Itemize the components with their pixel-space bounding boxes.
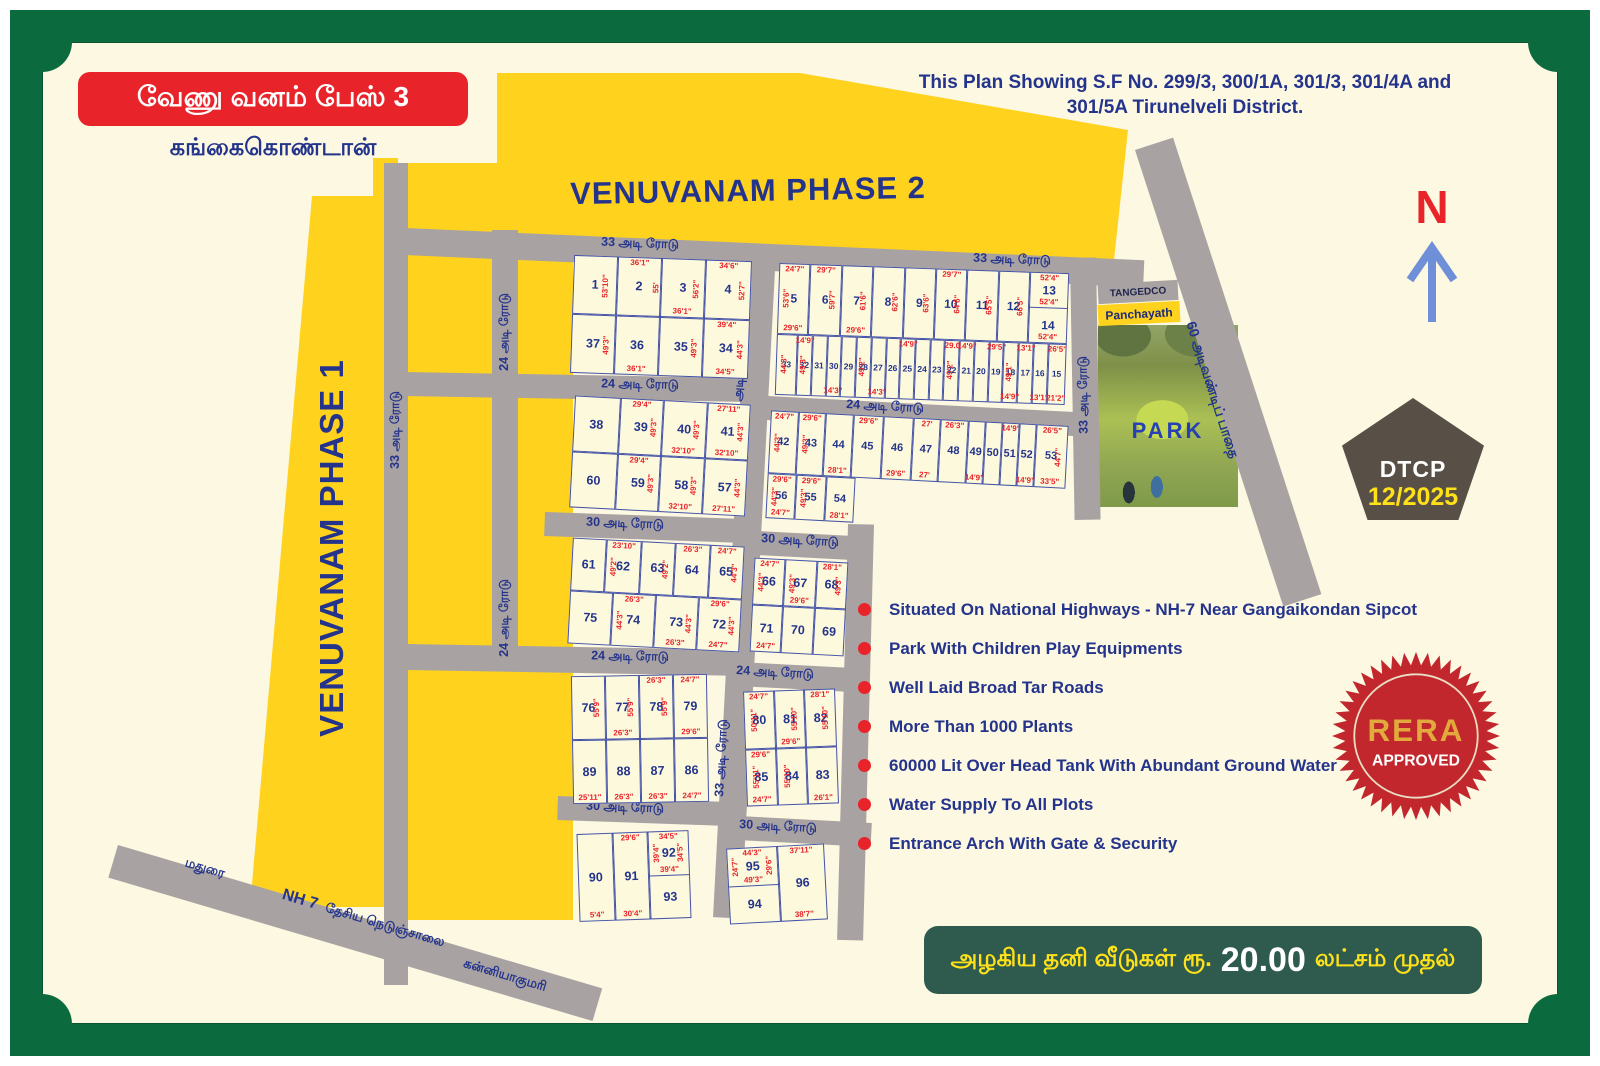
plot-dimension: 44'3" [771, 486, 780, 505]
plot-dimension: 39'4" [717, 321, 736, 330]
plot-dimension: 29'6" [621, 834, 640, 843]
plot-number: 16 [1035, 369, 1045, 378]
plot-83: 8326'1" [806, 746, 839, 805]
plot-dimension: 49'2" [662, 559, 671, 578]
survey-note: This Plan Showing S.F No. 299/3, 300/1A,… [900, 70, 1470, 120]
plot-dimension: 26'5" [1048, 345, 1067, 354]
plot-dimension: 24'7" [756, 642, 775, 651]
plot-14: 1452'4" [1029, 307, 1067, 343]
plot-dimension: 28'1" [829, 511, 848, 520]
plot-number: 94 [747, 897, 762, 910]
plot-dimension: 26'3" [665, 639, 684, 648]
plot-dimension: 14'3" [867, 388, 886, 397]
plot-62: 6223'10"49'2" [604, 539, 641, 594]
plot-dimension: 29'7" [942, 271, 961, 280]
plot-dimension: 24'7" [752, 796, 771, 805]
plot-dimension: 26'3" [683, 545, 702, 554]
plot-number: 13 [1042, 284, 1056, 296]
plot-dimension: 55'9" [627, 698, 635, 717]
plot-74: 7426'3"44'3" [610, 593, 656, 648]
plot-number: 44 [832, 440, 845, 452]
plot-6: 629'7"59'7" [808, 264, 842, 336]
plot-42: 4224'7"44'3" [768, 410, 799, 474]
plot-dimension: 49'3" [799, 356, 808, 375]
plot-dimension: 44'3" [736, 340, 745, 359]
feature-item: Well Laid Broad Tar Roads [858, 678, 1418, 717]
plot-94: 94 [729, 883, 780, 923]
plot-dimension: 55'11" [752, 766, 761, 789]
plot-dimension: 24'7" [682, 792, 701, 800]
plot-dimension: 29'6" [751, 750, 770, 759]
plot-dimension: 27' [919, 471, 930, 480]
plot-dimension: 65'5" [985, 296, 994, 315]
plot-dimension: 32'10" [671, 447, 695, 456]
plot-dimension: 49'3" [693, 420, 702, 439]
plot-block-6: 6624'7"44'3"6749'3"29'6"6828'1"49'3"7124… [750, 558, 849, 657]
plot-block-2: 524'7"53'6"29'6"629'7"59'7"761'6"29'6"86… [775, 263, 1069, 405]
plot-dimension: 37'11" [789, 846, 812, 855]
plot-number: 15 [1052, 370, 1062, 379]
plot-69: 69 [812, 608, 846, 657]
plot-number: 54 [833, 494, 846, 506]
plot-56: 5629'6"44'3"24'7" [765, 473, 797, 519]
feature-text: 60000 Lit Over Head Tank With Abundant G… [889, 756, 1337, 776]
plot-number: 23 [932, 365, 942, 374]
plot-65: 6524'7"44'3" [708, 545, 745, 600]
plot-dimension: 24'7" [680, 676, 699, 684]
plot-number: 4 [724, 283, 731, 296]
plot-49: 4914'9" [966, 421, 986, 485]
bullet-icon [858, 681, 871, 694]
plot-58: 5849'3"32'10" [658, 456, 704, 514]
plot-87: 8726'3" [640, 738, 675, 803]
plot-dimension: 49'3" [690, 338, 699, 357]
plot-88: 8826'3" [606, 739, 641, 804]
plot-number: 48 [947, 446, 960, 458]
plot-number: 60 [586, 474, 601, 487]
plot-dimension: 24'7" [771, 508, 790, 517]
plot-dimension: 29'4" [632, 400, 651, 409]
plot-dimension: 49'2" [946, 361, 955, 380]
feature-text: Water Supply To All Plots [889, 795, 1093, 815]
plot-13: 1352'4"52'4" [1030, 273, 1068, 308]
plot-dimension: 29'7" [817, 266, 836, 275]
plot-dimension: 34'5" [715, 368, 734, 377]
plot-block-3: 383929'4"49'3"4049'3"32'10"4127'11"44'3"… [569, 395, 751, 516]
plot-57: 5744'3"27'11" [702, 458, 748, 516]
plot-dimension: 29'6" [859, 417, 878, 426]
plot-44: 4428'1" [823, 413, 854, 477]
plot-dimension: 29'6" [783, 324, 802, 333]
plot-dimension: 27'11" [717, 405, 740, 414]
plot-84: 8455'10" [776, 747, 809, 806]
plot-68: 6828'1"49'3" [815, 561, 849, 610]
plot-block-9: 905'4"9129'6"30'4"9234'5"39'4"34'5"39'4"… [576, 830, 691, 922]
plot-10: 1029'7"64'6" [934, 268, 968, 340]
plot-dimension: 55'9" [593, 698, 601, 717]
plot-dimension: 59'7" [828, 290, 837, 309]
plot-dimension: 44'3" [685, 614, 694, 633]
plot-dimension: 29'6" [710, 600, 729, 609]
plot-number: 26 [888, 364, 898, 373]
plot-dimension: 25'11" [578, 794, 601, 802]
plot-dimension: 49'3" [789, 573, 798, 592]
plot-block-10: 9544'3"24'7"29'6"49'3"949637'11"38'7" [726, 843, 828, 924]
plot-dimension: 26'3" [624, 595, 643, 604]
plot-dimension: 55'9" [661, 697, 669, 716]
plot-12: 1266'5" [997, 271, 1031, 343]
price-suffix: லட்சம் முதல் [1315, 945, 1456, 975]
plot-dimension: 14'9" [1001, 424, 1020, 433]
plot-number: 45 [861, 441, 874, 453]
plot-63: 6349'2" [639, 541, 676, 596]
road [1070, 258, 1101, 520]
plot-dimension: 36'1" [630, 259, 649, 268]
plot-39: 3929'4"49'3" [618, 398, 664, 456]
plot-dimension: 44'3" [727, 616, 736, 635]
plot-11: 1165'5" [965, 270, 999, 342]
plot-dimension: 13'1" [1016, 344, 1035, 353]
plot-number: 88 [616, 765, 630, 778]
price-amount: 20.00 [1221, 941, 1306, 980]
plot-number: 35 [674, 341, 688, 354]
plot-dimension: 55'10" [790, 707, 799, 731]
plot-dimension: 14'9" [1000, 393, 1019, 402]
plot-dimension: 24'7" [749, 693, 768, 702]
plot-70: 70 [781, 606, 815, 655]
plot-number: 73 [669, 616, 684, 629]
plot-number: 58 [674, 479, 689, 492]
plot-dimension: 23'10" [612, 542, 636, 551]
plot-number: 24 [917, 365, 927, 374]
plot-dimension: 29'6" [765, 856, 774, 875]
plot-77: 7755'9"26'3" [605, 675, 640, 740]
plot-dimension: 29'6" [772, 475, 791, 484]
plot-number: 38 [589, 418, 604, 431]
plot-dimension: 44'3" [742, 849, 761, 858]
plot-86: 8624'7" [674, 738, 709, 803]
plot-dimension: 28'1" [827, 466, 846, 475]
plot-55: 5529'6"49'3" [795, 475, 827, 521]
feature-item: Situated On National Highways - NH-7 Nea… [858, 600, 1418, 639]
plot-dimension: 44'3" [733, 478, 742, 497]
plot-dimension: 24'7" [760, 560, 779, 569]
feature-text: Park With Children Play Equipments [889, 639, 1183, 659]
plot-number: 75 [583, 611, 598, 624]
price-prefix: அழகிய தனி வீடுகள் ரூ. [951, 945, 1212, 975]
plot-number: 40 [677, 423, 692, 436]
plot-number: 93 [663, 890, 677, 903]
plot-dimension: 29'6" [781, 737, 800, 746]
plot-dimension: 44'3" [757, 572, 766, 591]
plot-dimension: 29'4" [629, 456, 648, 465]
plot-dimension: 5'4" [590, 911, 605, 920]
plot-number: 64 [684, 564, 699, 577]
park-label: PARK [1098, 418, 1238, 444]
plot-number: 27 [873, 363, 883, 372]
plot-dimension: 55' [652, 282, 660, 293]
plot-dimension: 24'7" [717, 547, 736, 556]
plot-3: 356'2"36'1" [660, 258, 706, 318]
plot-4: 434'6"52'7" [704, 260, 752, 321]
plot-15: 1526'5"21'2" [1046, 343, 1067, 405]
north-label: N [1400, 180, 1464, 234]
plot-dimension: 53'6" [782, 289, 791, 308]
bullet-icon [858, 603, 871, 616]
plot-number: 70 [790, 624, 805, 637]
plot-dimension: 29'6" [886, 469, 905, 478]
plot-37: 3749'3" [570, 314, 616, 374]
feature-item: Water Supply To All Plots [858, 795, 1418, 834]
plot-dimension: 38'7" [795, 910, 814, 919]
plot-dimension: 32'10" [668, 503, 692, 512]
plot-number: 71 [759, 622, 774, 635]
plot-47: 4727'27' [910, 418, 941, 482]
plot-71: 7124'7" [750, 605, 784, 654]
plot-36: 3636'1" [614, 315, 660, 375]
bullet-icon [858, 720, 871, 733]
plot-number: 87 [650, 764, 664, 777]
plot-dimension: 29'6" [790, 597, 809, 606]
plot-number: 89 [583, 766, 597, 779]
plot-number: 57 [717, 481, 732, 494]
plot-dimension: 29'5" [987, 343, 1006, 352]
plot-block-1: 153'10"236'1"55'356'2"36'1"434'6"52'7"37… [570, 255, 752, 379]
plot-90: 905'4" [576, 833, 615, 922]
plot-dimension: 49'3" [801, 434, 810, 453]
plot-dimension: 14'9" [899, 340, 918, 349]
plot-96: 9637'11"38'7" [777, 843, 827, 921]
plot-82: 8228'1"55'10" [804, 688, 837, 747]
plot-number: 51 [1003, 449, 1016, 461]
plot-number: 96 [795, 876, 810, 889]
plot-dimension: 55'10" [821, 706, 830, 730]
road [492, 230, 518, 660]
plot-number: 61 [581, 558, 596, 571]
plot-46: 4629'6" [880, 416, 913, 480]
plot-dimension: 49'2" [610, 557, 619, 576]
plot-number: 31 [814, 361, 824, 370]
plot-number: 21 [961, 366, 971, 375]
plot-dimension: 29'6" [802, 477, 821, 486]
plot-72: 7229'6"44'3"24'7" [696, 597, 742, 652]
plot-dimension: 56'2" [692, 279, 701, 298]
project-location: கங்கைகொண்டான் [78, 134, 468, 164]
plot-number: 37 [586, 338, 600, 351]
plot-number: 47 [919, 444, 932, 456]
road [384, 163, 408, 985]
plot-34: 3439'4"44'3"34'5" [702, 318, 750, 379]
plot-60: 60 [569, 451, 617, 509]
plot-dimension: 55'10" [783, 765, 792, 789]
plot-dimension: 52'4" [1038, 333, 1057, 342]
plot-number: 72 [712, 618, 727, 631]
plot-number: 92 [662, 847, 676, 860]
plot-92: 9234'5"39'4"34'5"39'4" [649, 831, 689, 875]
plot-91: 9129'6"30'4" [612, 831, 651, 920]
plot-dimension: 63'6" [922, 294, 931, 313]
plot-block-8: 8024'7"50'11"8155'10"29'6"8228'1"55'10"8… [743, 688, 839, 806]
plot-dimension: 24'7" [775, 412, 794, 421]
plot-number: 3 [679, 282, 686, 295]
plot-79: 7924'7"29'6" [673, 674, 708, 739]
project-title-badge: வேணு வனம் பேஸ் 3 [78, 72, 468, 126]
plot-dimension: 64'6" [954, 295, 963, 314]
plot-dimension: 14'3" [823, 387, 842, 396]
plot-number: 90 [589, 871, 603, 884]
plot-5: 524'7"53'6"29'6" [777, 263, 811, 335]
plot-73: 7344'3"26'3" [653, 595, 699, 650]
plot-41: 4127'11"44'3"32'10" [704, 402, 750, 460]
plot-number: 74 [626, 614, 641, 627]
feature-text: Situated On National Highways - NH-7 Nea… [889, 600, 1417, 620]
feature-list: Situated On National Highways - NH-7 Nea… [858, 600, 1418, 873]
plot-9: 963'6" [902, 267, 936, 339]
plot-80: 8024'7"50'11" [743, 691, 776, 750]
plot-53: 5326'5"44'7"33'5" [1033, 424, 1068, 489]
plot-number: 52 [1020, 449, 1033, 461]
plot-66: 6624'7"44'3" [752, 558, 786, 607]
plot-number: 19 [991, 367, 1001, 376]
plot-dimension: 44'3" [780, 355, 789, 374]
plot-dimension: 26'3" [614, 793, 633, 801]
plot-dimension: 26'3" [646, 677, 665, 685]
north-arrow-icon [1400, 236, 1464, 328]
plot-78: 7826'3"55'9" [639, 674, 674, 739]
feature-text: More Than 1000 Plants [889, 717, 1073, 737]
plot-number: 49 [969, 447, 982, 459]
plot-dimension: 44'7" [1054, 447, 1063, 466]
plot-dimension: 27' [921, 420, 932, 429]
plot-27: 2714'3" [869, 337, 886, 399]
plot-95: 9544'3"24'7"29'6"49'3" [727, 847, 778, 886]
panchayath-label: Panchayath [1098, 301, 1181, 326]
plot-85: 8529'6"55'11"24'7" [745, 748, 778, 807]
plot-67: 6749'3"29'6" [783, 559, 817, 608]
plot-number: 14 [1041, 319, 1055, 331]
plot-81: 8155'10"29'6" [774, 689, 807, 748]
plot-number: 2 [635, 280, 642, 293]
bullet-icon [858, 642, 871, 655]
plot-dimension: 49'3" [744, 875, 763, 884]
plot-dimension: 28'1" [823, 563, 842, 572]
feature-item: Park With Children Play Equipments [858, 639, 1418, 678]
feature-item: More Than 1000 Plants [858, 717, 1418, 756]
plot-dimension: 49'2" [858, 358, 867, 377]
plot-number: 30 [829, 362, 839, 371]
feature-item: 60000 Lit Over Head Tank With Abundant G… [858, 756, 1418, 795]
plot-number: 59 [631, 476, 646, 489]
feature-text: Entrance Arch With Gate & Security [889, 834, 1177, 854]
tangedco-label: TANGEDCO [1098, 280, 1179, 304]
plot-dimension: 49'3" [647, 474, 656, 493]
plot-dimension: 24'7" [785, 265, 804, 274]
plot-number: 91 [624, 870, 638, 883]
plot-dimension: 39'4" [653, 844, 662, 863]
dtcp-label: DTCP [1380, 456, 1447, 483]
plot-dimension: 36'1" [626, 365, 645, 374]
feature-item: Entrance Arch With Gate & Security [858, 834, 1418, 873]
plot-block-5: 616223'10"49'2"6349'2"6426'3"6524'7"44'3… [567, 538, 744, 653]
plot-number: 39 [634, 420, 649, 433]
plot-dimension: 39'4" [660, 865, 679, 874]
price-banner: அழகிய தனி வீடுகள் ரூ. 20.00 லட்சம் முதல் [924, 926, 1482, 994]
plot-number: 36 [630, 339, 644, 352]
plot-dimension: 49'3" [650, 418, 659, 437]
plot-40: 4049'3"32'10" [661, 400, 707, 458]
plot-dimension: 44'3" [730, 563, 739, 582]
plot-dimension: 33'5" [1040, 477, 1059, 486]
plot-dimension: 14'9" [1016, 476, 1035, 485]
plot-dimension: 50'11" [750, 708, 759, 731]
plot-number: 46 [891, 443, 904, 455]
project-title: வேணு வனம் பேஸ் 3 [137, 81, 409, 117]
plot-dimension: 27'11" [712, 505, 735, 514]
plot-number: 41 [720, 425, 735, 438]
plot-dimension: 14'9" [965, 474, 984, 483]
bullet-icon [858, 759, 871, 772]
plot-dimension: 30'4" [623, 910, 642, 919]
plot-7: 761'6"29'6" [840, 265, 874, 337]
plot-dimension: 44'3" [773, 432, 782, 451]
plot-dimension: 26'3" [613, 729, 632, 737]
plot-block-7: 7655'9"7755'9"26'3"7826'3"55'9"7924'7"29… [571, 674, 709, 804]
plot-dimension: 29'6" [802, 414, 821, 423]
feature-text: Well Laid Broad Tar Roads [889, 678, 1104, 698]
plot-75: 75 [567, 590, 613, 645]
plot-dimension: 49'3" [834, 576, 843, 595]
plot-dimension: 26'3" [945, 421, 964, 430]
plot-dimension: 36'1" [672, 307, 691, 316]
plot-59: 5929'4"49'3" [615, 454, 661, 512]
plot-number: 50 [986, 448, 999, 460]
plot-8: 862'6" [871, 266, 905, 338]
plot-64: 6426'3" [673, 543, 710, 598]
plot-number: 20 [976, 367, 986, 376]
plot-45: 4529'6" [851, 415, 884, 479]
plot-dimension: 49'1" [1005, 363, 1014, 382]
plot-number: 95 [746, 860, 761, 873]
plot-dimension: 49'3" [690, 476, 699, 495]
layout-poster: 33 அடி ரோடு33 அடி ரோடு24 அடி ரோடு24 அடி … [0, 0, 1600, 1066]
plot-dimension: 26'3" [648, 793, 667, 801]
plot-dimension: 44'3" [616, 610, 625, 629]
plot-number: 25 [902, 364, 912, 373]
plot-35: 3549'3" [658, 317, 704, 377]
plot-61: 61 [570, 538, 607, 593]
plot-38: 38 [572, 395, 620, 453]
plot-number: 86 [684, 764, 698, 777]
plot-dimension: 24'7" [731, 858, 740, 877]
plot-2: 236'1"55' [616, 256, 662, 316]
plot-93: 93 [650, 874, 690, 919]
plot-dimension: 29'6" [846, 326, 865, 335]
plot-dimension: 52'7" [738, 281, 747, 300]
plot-dimension: 26'5" [1043, 427, 1062, 436]
plot-dimension: 26'1" [814, 794, 833, 803]
plot-dimension: 14'9" [795, 336, 814, 345]
plot-number: 17 [1020, 369, 1030, 378]
plot-dimension: 21'2" [1046, 394, 1065, 403]
plot-number: 5 [790, 293, 797, 305]
plot-dimension: 34'5" [659, 832, 678, 841]
plot-dimension: 49'3" [800, 488, 809, 507]
plot-dimension: 53'10" [602, 274, 611, 298]
dtcp-number: 12/2025 [1368, 483, 1458, 512]
plot-89: 8925'11" [572, 740, 607, 805]
plot-76: 7655'9" [571, 676, 606, 741]
plot-54: 5428'1" [824, 476, 856, 522]
